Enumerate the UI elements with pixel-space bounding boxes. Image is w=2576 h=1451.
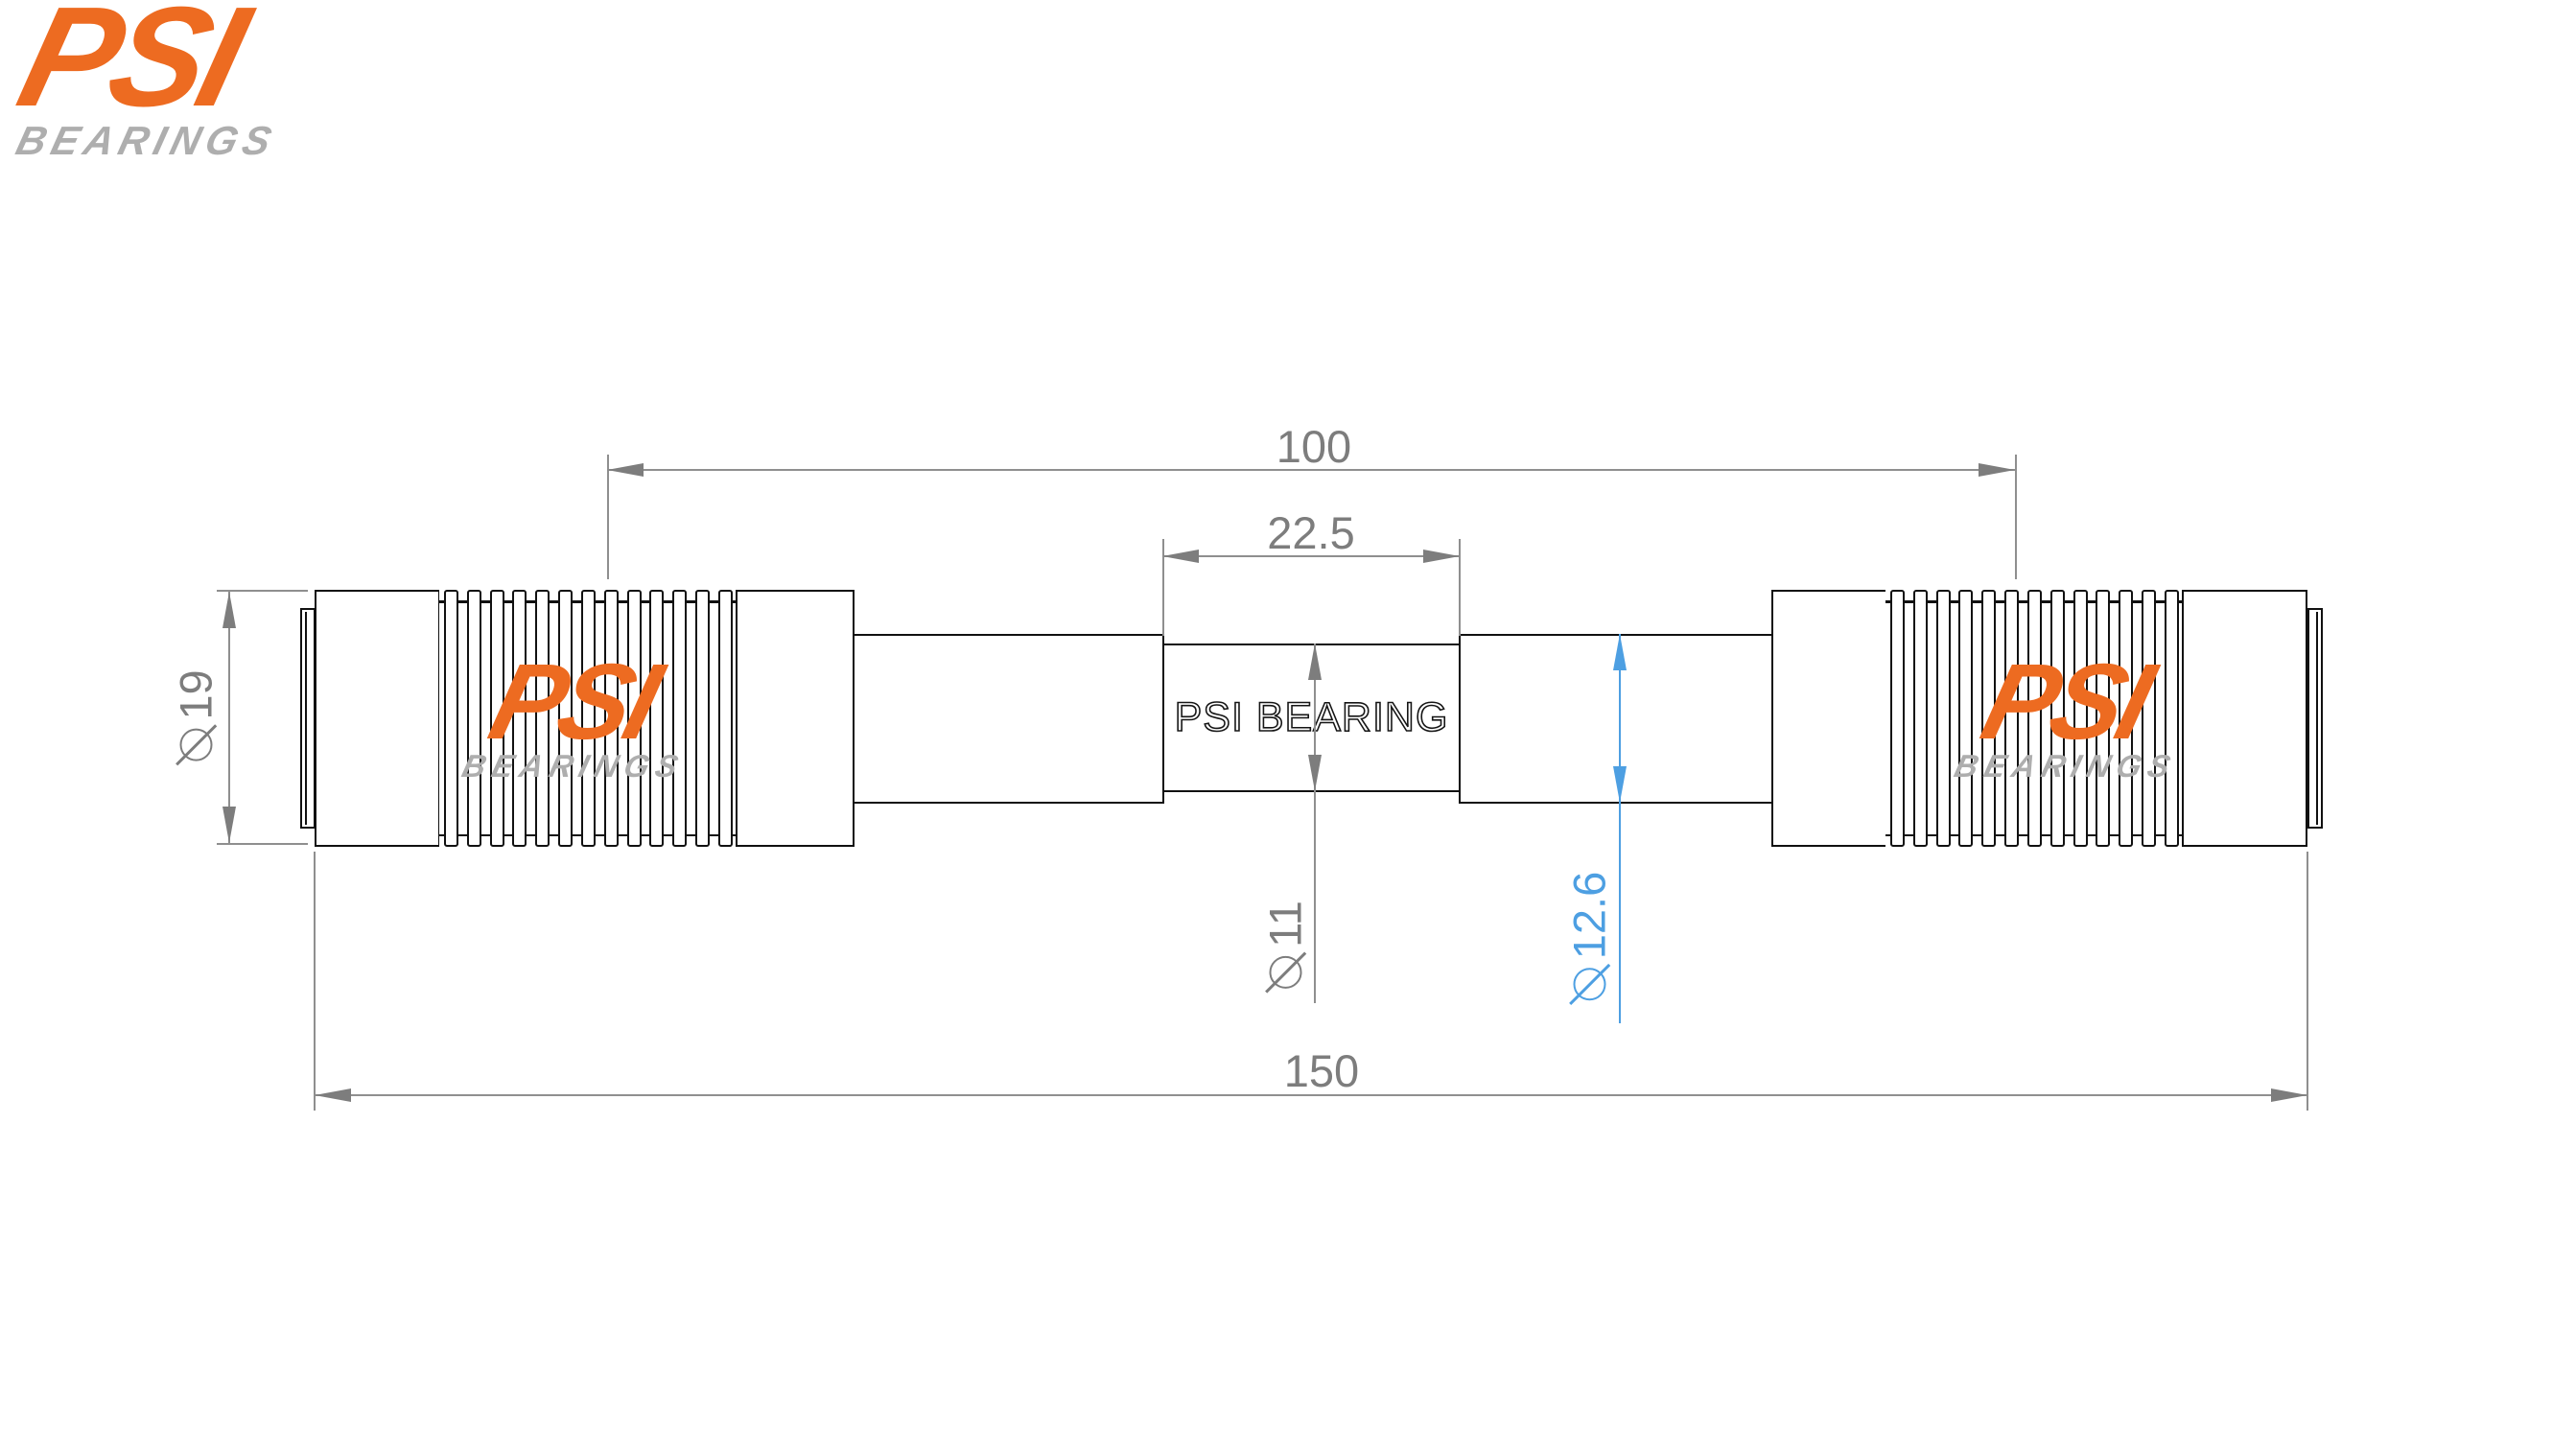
dim-22-5-value: 22.5 [1167,506,1455,559]
dim-150-arrow-right [2271,1088,2307,1102]
thread-rib [649,590,664,847]
shaft-left-end-cap [300,608,316,829]
dim-100-value: 100 [1170,420,1458,473]
dim-d11-line [1314,644,1316,1003]
thread-rib [444,590,458,847]
dim-100-arrow-right [1979,463,2015,477]
dim-d12-6-arrow-down [1613,766,1627,803]
dim-d19-value: 19 [170,669,222,719]
dim-d12-6-line [1619,634,1621,1023]
diameter-symbol [1269,956,1301,989]
thread-rib [2050,590,2065,847]
thread-rib [558,590,573,847]
thread-rib [2073,590,2088,847]
dim-150-ext-line-right [2307,852,2308,1111]
thread-rib [1958,590,1973,847]
thread-rib [627,590,642,847]
diameter-symbol [179,729,212,761]
thread-rib [2165,590,2179,847]
brand-logo: PSI BEARINGS [25,0,276,161]
shaft-left-bearing-seat [853,634,1164,804]
thread-rib [2142,590,2156,847]
dim-d19-line [228,592,230,843]
dim-150-arrow-left [315,1088,351,1102]
dim-d11-value: 11 [1259,901,1312,948]
shaft-right-thread-section [1885,590,2184,847]
dim-d11-label: 11 [1259,901,1312,989]
dim-d12-6-label: 12.6 [1563,872,1616,1000]
dim-150-value: 150 [1178,1044,1465,1097]
dim-d19-arrow-up [222,592,236,628]
dim-d19-label: 19 [170,669,222,761]
thread-rib [672,590,687,847]
thread-rib [1981,590,1996,847]
diameter-symbol [1573,968,1605,1000]
thread-rib [535,590,550,847]
brand-logo-psi-text: PSI [8,0,294,129]
thread-rib [1936,590,1951,847]
shaft-right-plain-outer [2182,590,2307,847]
thread-rib [490,590,504,847]
center-engraving-text: PSI BEARING [1175,694,1449,741]
shaft-left-plain-outer [315,590,440,847]
dim-d11-arrow-down [1308,755,1322,791]
shaft-right-plain-inner [1771,590,1887,847]
thread-rib [604,590,619,847]
dim-d19-ext-line-bottom [217,843,308,845]
shaft-left-thread-section [439,590,738,847]
thread-rib [695,590,710,847]
dim-100-ext-line-right [2015,455,2017,579]
dim-d12-6-arrow-up [1613,634,1627,670]
thread-rib [718,590,733,847]
dim-150-ext-line-left [314,852,316,1111]
dim-d12-6-value: 12.6 [1563,872,1616,959]
thread-rib [2119,590,2133,847]
thread-rib [2027,590,2042,847]
thread-rib [2004,590,2019,847]
shaft-left-plain-inner [736,590,855,847]
thread-rib [1913,590,1928,847]
dim-100-arrow-left [607,463,644,477]
thread-rib [1890,590,1905,847]
brand-logo-bearings-text: BEARINGS [12,121,281,161]
drawing-canvas: PSI BEARINGS PSI BEARING PSI BEARINGS PS… [0,0,2576,1451]
dim-d11-arrow-up [1308,644,1322,680]
thread-rib [581,590,596,847]
dim-d19-arrow-down [222,807,236,843]
shaft-right-end-cap [2307,608,2323,829]
thread-rib [512,590,527,847]
thread-rib [467,590,481,847]
thread-rib [2096,590,2110,847]
